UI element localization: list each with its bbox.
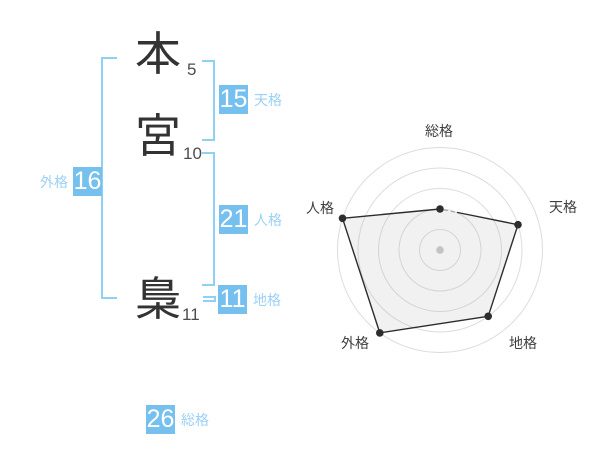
jinkaku-label: 人格: [254, 210, 282, 230]
radar-axis-label: 外格: [341, 335, 369, 351]
gaikaku-label: 外格: [40, 172, 68, 192]
radar-series-fill: [343, 209, 519, 333]
gaikaku-bracket: [101, 57, 117, 299]
name-fortune-panel: 本 5 宮 10 梟 11 15 天格 21 人格 11 地格 外格 16 26…: [0, 0, 600, 470]
gaikaku-value-badge: 16: [73, 167, 102, 196]
name-character-3: 梟: [134, 275, 182, 323]
soukaku-value-badge: 26: [146, 405, 175, 434]
jinkaku-group: 21 人格: [219, 205, 282, 234]
tenkaku-label: 天格: [254, 90, 282, 110]
radar-vertex-dot: [436, 205, 444, 213]
stroke-count-3: 11: [182, 305, 200, 325]
chikaku-value-badge: 11: [218, 285, 247, 314]
radar-axis-label: 人格: [306, 200, 334, 216]
chikaku-group: 11 地格: [218, 285, 281, 314]
soukaku-label: 総格: [181, 410, 209, 430]
chikaku-label: 地格: [253, 290, 281, 310]
stroke-count-1: 5: [187, 60, 196, 80]
radar-vertex-dot: [376, 329, 384, 337]
tenkaku-group: 15 天格: [219, 85, 282, 114]
chikaku-bracket: [203, 296, 216, 302]
radar-vertex-dot: [514, 221, 522, 229]
radar-chart: 総格天格地格外格人格: [290, 115, 590, 365]
gaikaku-group: 外格 16: [40, 167, 102, 196]
radar-axis-label: 総格: [425, 123, 453, 139]
name-character-2: 宮: [134, 112, 182, 160]
radar-vertex-dot: [339, 215, 347, 223]
radar-axis-label: 天格: [549, 199, 577, 215]
tenkaku-value-badge: 15: [219, 85, 248, 114]
soukaku-group: 26 総格: [146, 405, 209, 434]
stroke-count-2: 10: [183, 144, 202, 164]
jinkaku-value-badge: 21: [219, 205, 248, 234]
tenkaku-bracket: [202, 60, 215, 141]
jinkaku-bracket: [202, 152, 215, 286]
radar-chart-container: 総格天格地格外格人格: [290, 115, 590, 365]
radar-axis-label: 地格: [509, 335, 537, 351]
name-character-1: 本: [134, 30, 182, 78]
radar-vertex-dot: [484, 313, 492, 321]
